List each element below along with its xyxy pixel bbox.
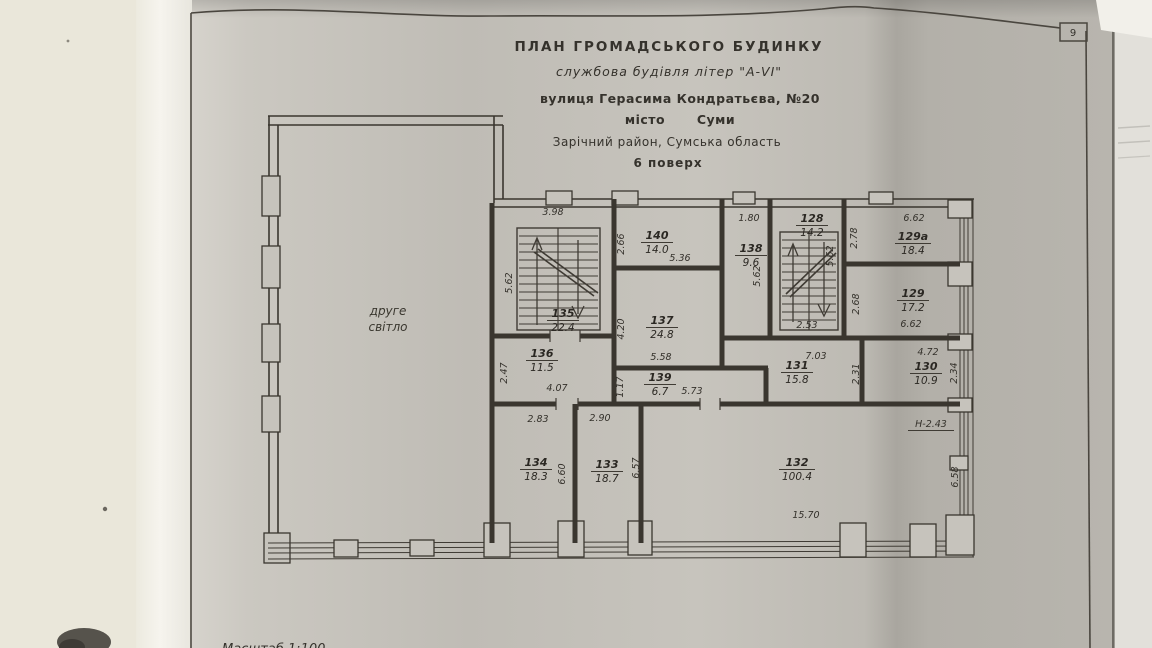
pilaster	[910, 524, 936, 557]
svg-text:24.8: 24.8	[650, 329, 674, 341]
room-134-label: 134 18.3	[520, 456, 552, 483]
district-region: Зарічний район, Сумська область	[553, 135, 781, 149]
svg-text:18.3: 18.3	[524, 471, 547, 483]
page-number: 9	[1070, 28, 1076, 39]
street-address: вулиця Герасима Кондратьєва, №20	[540, 91, 820, 106]
pilaster	[948, 200, 972, 218]
scale-note: Масштаб 1:100	[222, 642, 325, 648]
window	[262, 396, 280, 432]
corner-pilaster	[946, 515, 974, 555]
svg-text:128: 128	[801, 212, 824, 225]
scene: 9 ПЛАН ГРОМАДСЬКОГО БУДИНКУ службова буд…	[0, 0, 1152, 648]
svg-text:134: 134	[525, 456, 548, 469]
svg-text:2.66: 2.66	[616, 233, 627, 254]
svg-text:17.2: 17.2	[901, 302, 925, 314]
svg-text:130: 130	[915, 360, 938, 373]
svg-text:5.73: 5.73	[681, 386, 702, 397]
room-129-label: 129 17.2	[897, 287, 929, 314]
pilaster	[484, 523, 510, 557]
svg-text:15.8: 15.8	[785, 374, 809, 386]
facade-notch	[733, 192, 755, 204]
svg-text:6.57: 6.57	[631, 457, 642, 478]
svg-text:5.58: 5.58	[650, 352, 671, 363]
window	[262, 176, 280, 216]
svg-text:2.90: 2.90	[589, 413, 610, 424]
svg-text:14.0: 14.0	[645, 244, 669, 256]
svg-text:2.31: 2.31	[851, 363, 862, 384]
pilaster	[558, 521, 584, 557]
room-137-label: 137 24.8	[646, 314, 678, 341]
speck	[67, 40, 70, 43]
svg-text:світло: світло	[368, 320, 407, 334]
svg-text:18.7: 18.7	[595, 473, 619, 485]
svg-text:6.7: 6.7	[652, 386, 669, 398]
floor-number: 6 поверх	[633, 156, 702, 170]
svg-text:4.07: 4.07	[546, 383, 567, 394]
city-label: місто	[625, 112, 665, 127]
svg-text:5.36: 5.36	[669, 253, 690, 264]
svg-text:друге: друге	[369, 304, 407, 318]
window	[410, 540, 434, 556]
room-133-label: 133 18.7	[591, 458, 623, 485]
room-128-label: 128 14.2	[796, 212, 828, 239]
svg-text:6.58: 6.58	[950, 466, 961, 487]
page-edge-curl	[136, 0, 196, 648]
svg-text:133: 133	[596, 458, 619, 471]
svg-text:4.72: 4.72	[917, 347, 938, 358]
svg-text:140: 140	[646, 229, 669, 242]
svg-text:4.20: 4.20	[616, 318, 627, 339]
svg-text:15.70: 15.70	[792, 510, 819, 521]
svg-text:10.9: 10.9	[914, 375, 938, 387]
svg-text:5.62: 5.62	[825, 245, 836, 266]
svg-text:18.4: 18.4	[901, 245, 924, 257]
room-140-label: 140 14.0	[641, 229, 673, 256]
svg-text:2.68: 2.68	[851, 293, 862, 314]
svg-text:138: 138	[740, 242, 763, 255]
svg-text:136: 136	[531, 347, 554, 360]
svg-text:11.5: 11.5	[530, 362, 554, 374]
city-value: Суми	[697, 112, 735, 127]
pilaster	[840, 523, 866, 557]
svg-text:6.62: 6.62	[903, 213, 924, 224]
room-130-label: 130 10.9	[910, 360, 942, 387]
window	[262, 246, 280, 288]
svg-text:2.83: 2.83	[527, 414, 548, 425]
svg-text:22.4: 22.4	[551, 322, 574, 334]
svg-text:135: 135	[552, 307, 575, 320]
svg-text:5.62: 5.62	[504, 272, 515, 293]
under-page	[1113, 0, 1152, 648]
room-135-label: 135 22.4	[547, 307, 579, 334]
plan-title: ПЛАН ГРОМАДСЬКОГО БУДИНКУ	[514, 39, 823, 55]
facade-notch	[869, 192, 893, 204]
svg-text:132: 132	[786, 456, 809, 469]
svg-text:2.34: 2.34	[949, 362, 960, 383]
svg-text:2.78: 2.78	[849, 227, 860, 248]
room-136-label: 136 11.5	[526, 347, 558, 374]
window	[262, 324, 280, 362]
svg-text:7.03: 7.03	[805, 351, 826, 362]
facade-notch	[546, 191, 572, 205]
svg-text:Н-2.43: Н-2.43	[915, 419, 947, 430]
svg-text:14.2: 14.2	[800, 227, 824, 239]
window	[334, 540, 358, 557]
svg-text:129а: 129а	[898, 230, 928, 243]
svg-text:5.62: 5.62	[752, 265, 763, 286]
room-131-label: 131 15.8	[781, 359, 813, 386]
building-subtitle: службова будівля літер "А-VI"	[556, 64, 782, 79]
svg-text:6.60: 6.60	[557, 463, 568, 484]
photo-of-floor-plan-document: { "page": { "page_number": "9", "scale_n…	[0, 0, 1152, 648]
svg-text:139: 139	[649, 371, 672, 384]
svg-text:1.17: 1.17	[615, 376, 626, 397]
svg-text:129: 129	[902, 287, 925, 300]
svg-text:2.53: 2.53	[796, 320, 817, 331]
speck	[103, 507, 107, 511]
document-right-edge	[1112, 0, 1115, 648]
svg-text:2.47: 2.47	[499, 362, 510, 383]
svg-text:3.98: 3.98	[542, 207, 563, 218]
svg-text:137: 137	[651, 314, 674, 327]
svg-text:1.80: 1.80	[738, 213, 759, 224]
svg-text:100.4: 100.4	[782, 471, 812, 483]
svg-text:6.62: 6.62	[900, 319, 921, 330]
